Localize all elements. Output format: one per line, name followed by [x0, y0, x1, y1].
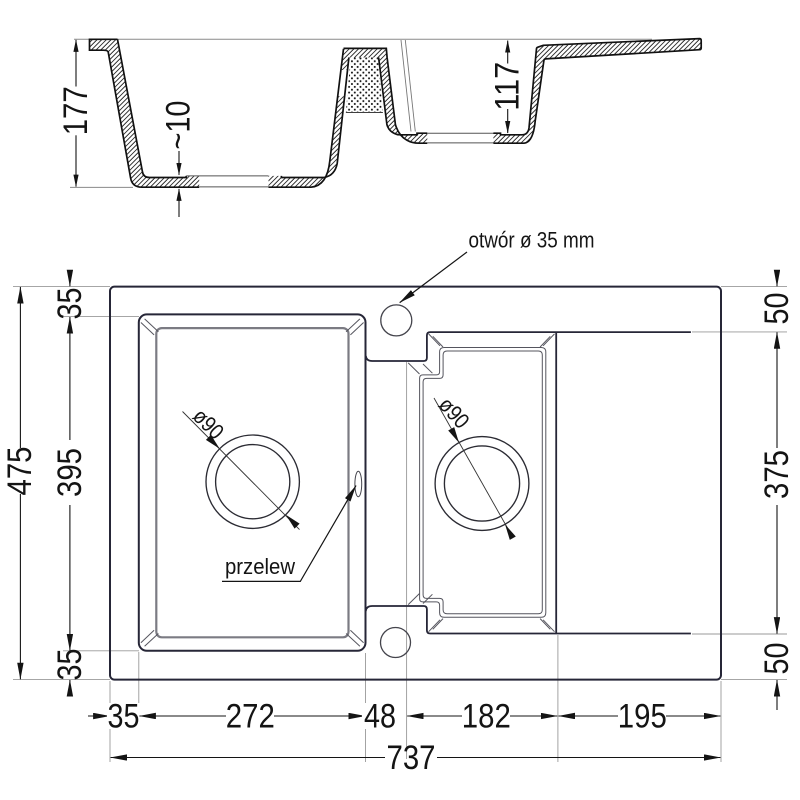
svg-text:48: 48: [364, 698, 396, 736]
svg-text:~10: ~10: [159, 101, 197, 150]
svg-text:195: 195: [618, 698, 667, 736]
svg-text:35: 35: [51, 649, 89, 681]
svg-text:375: 375: [758, 450, 796, 499]
svg-text:737: 737: [387, 739, 436, 777]
svg-text:177: 177: [57, 86, 95, 135]
svg-text:35: 35: [51, 288, 89, 320]
svg-text:35: 35: [108, 698, 140, 736]
svg-text:ø90: ø90: [434, 392, 475, 433]
svg-text:182: 182: [462, 698, 511, 736]
svg-text:otwór ø 35 mm: otwór ø 35 mm: [469, 228, 595, 253]
svg-text:475: 475: [1, 447, 39, 496]
svg-text:50: 50: [758, 293, 796, 325]
svg-text:117: 117: [489, 62, 527, 111]
svg-text:ø90: ø90: [188, 403, 229, 444]
svg-text:50: 50: [758, 643, 796, 675]
svg-text:395: 395: [51, 448, 89, 497]
svg-text:przelew: przelew: [225, 554, 295, 579]
svg-text:272: 272: [226, 698, 275, 736]
